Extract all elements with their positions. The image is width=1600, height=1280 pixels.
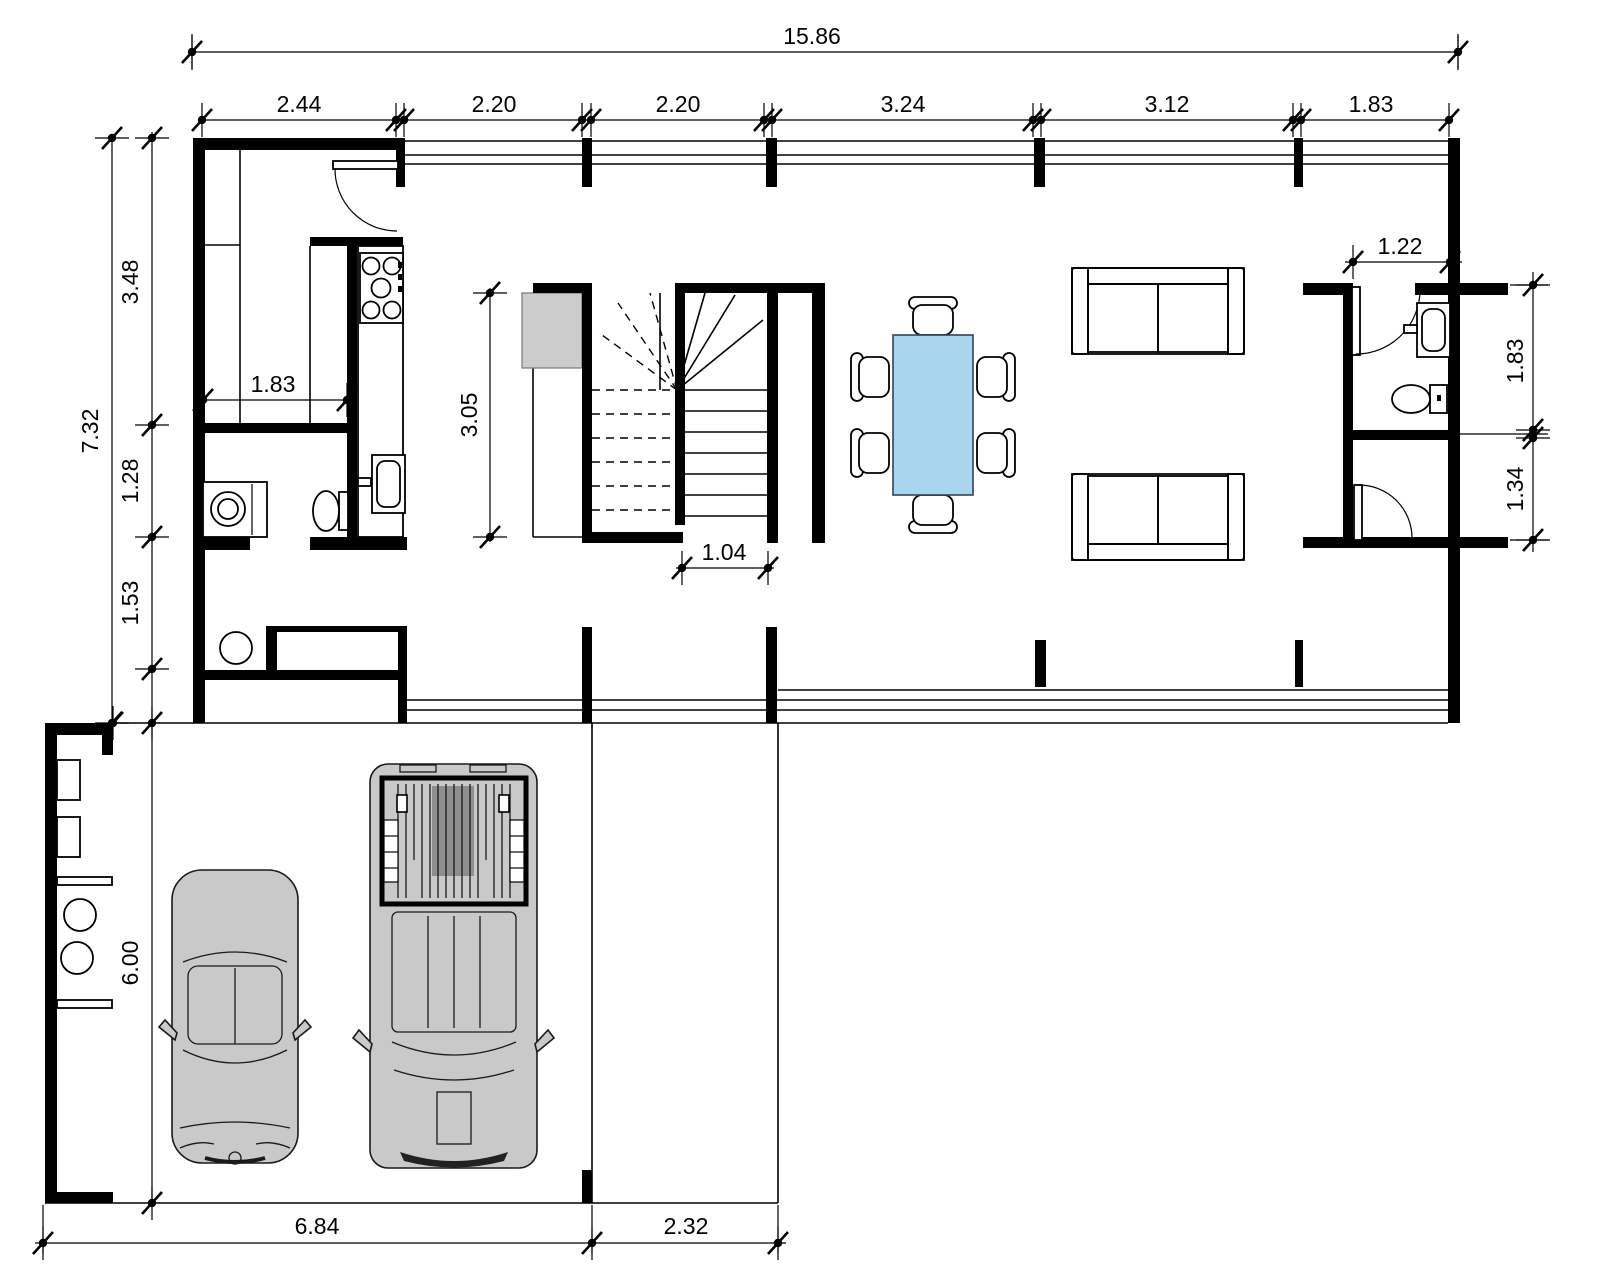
column-top-5 [1294, 138, 1303, 187]
dining-chair-right-2 [977, 429, 1015, 477]
wall-stair-middle [675, 293, 685, 525]
wall-garage-bottom-stub [45, 1192, 113, 1203]
dining-table [893, 335, 973, 495]
water-heater [220, 632, 252, 664]
dining-set [851, 297, 1015, 533]
dim-top-3: 2.20 [656, 91, 701, 117]
dim-top-1: 2.44 [277, 91, 322, 117]
floor-plan-drawing: 15.86 2.44 2.20 2.20 3.24 3.12 1.83 7.32… [0, 0, 1600, 1280]
doors [333, 161, 1420, 540]
wc-lower-door [1354, 485, 1412, 540]
dim-bath-niche: 1.22 [1378, 233, 1423, 259]
wall-wc-bottom [1303, 537, 1508, 548]
dim-top-6: 1.83 [1349, 91, 1394, 117]
car-suv [159, 870, 311, 1164]
dim-terrace-width: 2.32 [664, 1213, 709, 1239]
wall-hall-bottom [193, 670, 407, 680]
dim-left-3: 1.53 [117, 581, 143, 626]
living-room [1072, 268, 1244, 560]
car-pickup [353, 764, 554, 1168]
sofa-top [1072, 268, 1244, 354]
wall-bath-bottom-right [310, 537, 407, 550]
column-bottom-2 [766, 627, 777, 723]
wall-wc-middle [1350, 430, 1453, 440]
dim-left-total: 7.32 [77, 409, 103, 454]
toilet-right [1392, 385, 1447, 413]
kitchen-fixtures [358, 253, 405, 513]
dim-garage-width: 6.84 [295, 1213, 340, 1239]
wall-stair-bottom [582, 532, 683, 543]
column-bottom-1 [582, 627, 592, 723]
dim-top-2: 2.20 [472, 91, 517, 117]
dining-chair-top [909, 297, 957, 335]
toilet-left [313, 491, 348, 531]
column-bottom-3 [1035, 640, 1046, 687]
dining-chair-bottom [909, 495, 957, 533]
dim-left-2: 1.28 [117, 459, 143, 504]
dim-garage-depth: 6.00 [117, 941, 143, 986]
dim-kitchen: 1.83 [251, 371, 296, 397]
sofa-bottom [1072, 474, 1244, 560]
wall-bath-bottom-left [193, 537, 250, 550]
dim-top-5: 3.12 [1145, 91, 1190, 117]
dim-bath-upper: 1.83 [1502, 339, 1528, 384]
pickup-mirror-left [353, 1030, 372, 1052]
column-top-3 [766, 138, 777, 187]
dim-total-top: 15.86 [783, 23, 841, 49]
staircase [522, 293, 767, 516]
dining-chair-left-2 [851, 429, 889, 477]
column-bottom-4 [1295, 640, 1303, 687]
wall-wc-top-right [1415, 283, 1508, 295]
wall-wc-top-left [1303, 283, 1347, 295]
wc-upper-door [1352, 287, 1420, 355]
dining-chair-left-1 [851, 353, 889, 401]
pickup-mirror-right [535, 1030, 554, 1052]
dining-chair-right-1 [977, 353, 1015, 401]
wall-garage-right-stub [582, 1170, 592, 1203]
dim-stair-well: 3.05 [456, 393, 482, 438]
wall-garage-left [45, 723, 57, 1203]
column-top-4 [1034, 138, 1045, 187]
wall-hall [193, 423, 357, 433]
washing-machine [203, 482, 267, 537]
wall-stair-left [582, 283, 592, 535]
washbasin [1404, 303, 1450, 357]
column-top-2 [582, 138, 592, 187]
stair-treads-hidden [592, 293, 677, 510]
stair-landing [522, 293, 582, 368]
kitchen-sink [358, 455, 405, 513]
stove [360, 253, 403, 323]
dim-top-4: 3.24 [881, 91, 926, 117]
bathroom-fixtures [1392, 303, 1450, 413]
dim-stair-exit: 1.04 [702, 539, 747, 565]
entry-door [333, 161, 398, 231]
dim-left-1: 3.48 [117, 260, 143, 305]
wall-top-kitchen [193, 138, 403, 150]
wall-mudroom-top [266, 626, 407, 632]
dim-bath-lower: 1.34 [1502, 466, 1528, 511]
garage-workbench [57, 760, 112, 1008]
wall-stair-right [767, 293, 778, 543]
floor-plan-sheet: 15.86 2.44 2.20 2.20 3.24 3.12 1.83 7.32… [0, 0, 1600, 1280]
wall-stair-top-right [675, 283, 825, 293]
wall-stair-closet [812, 293, 825, 543]
